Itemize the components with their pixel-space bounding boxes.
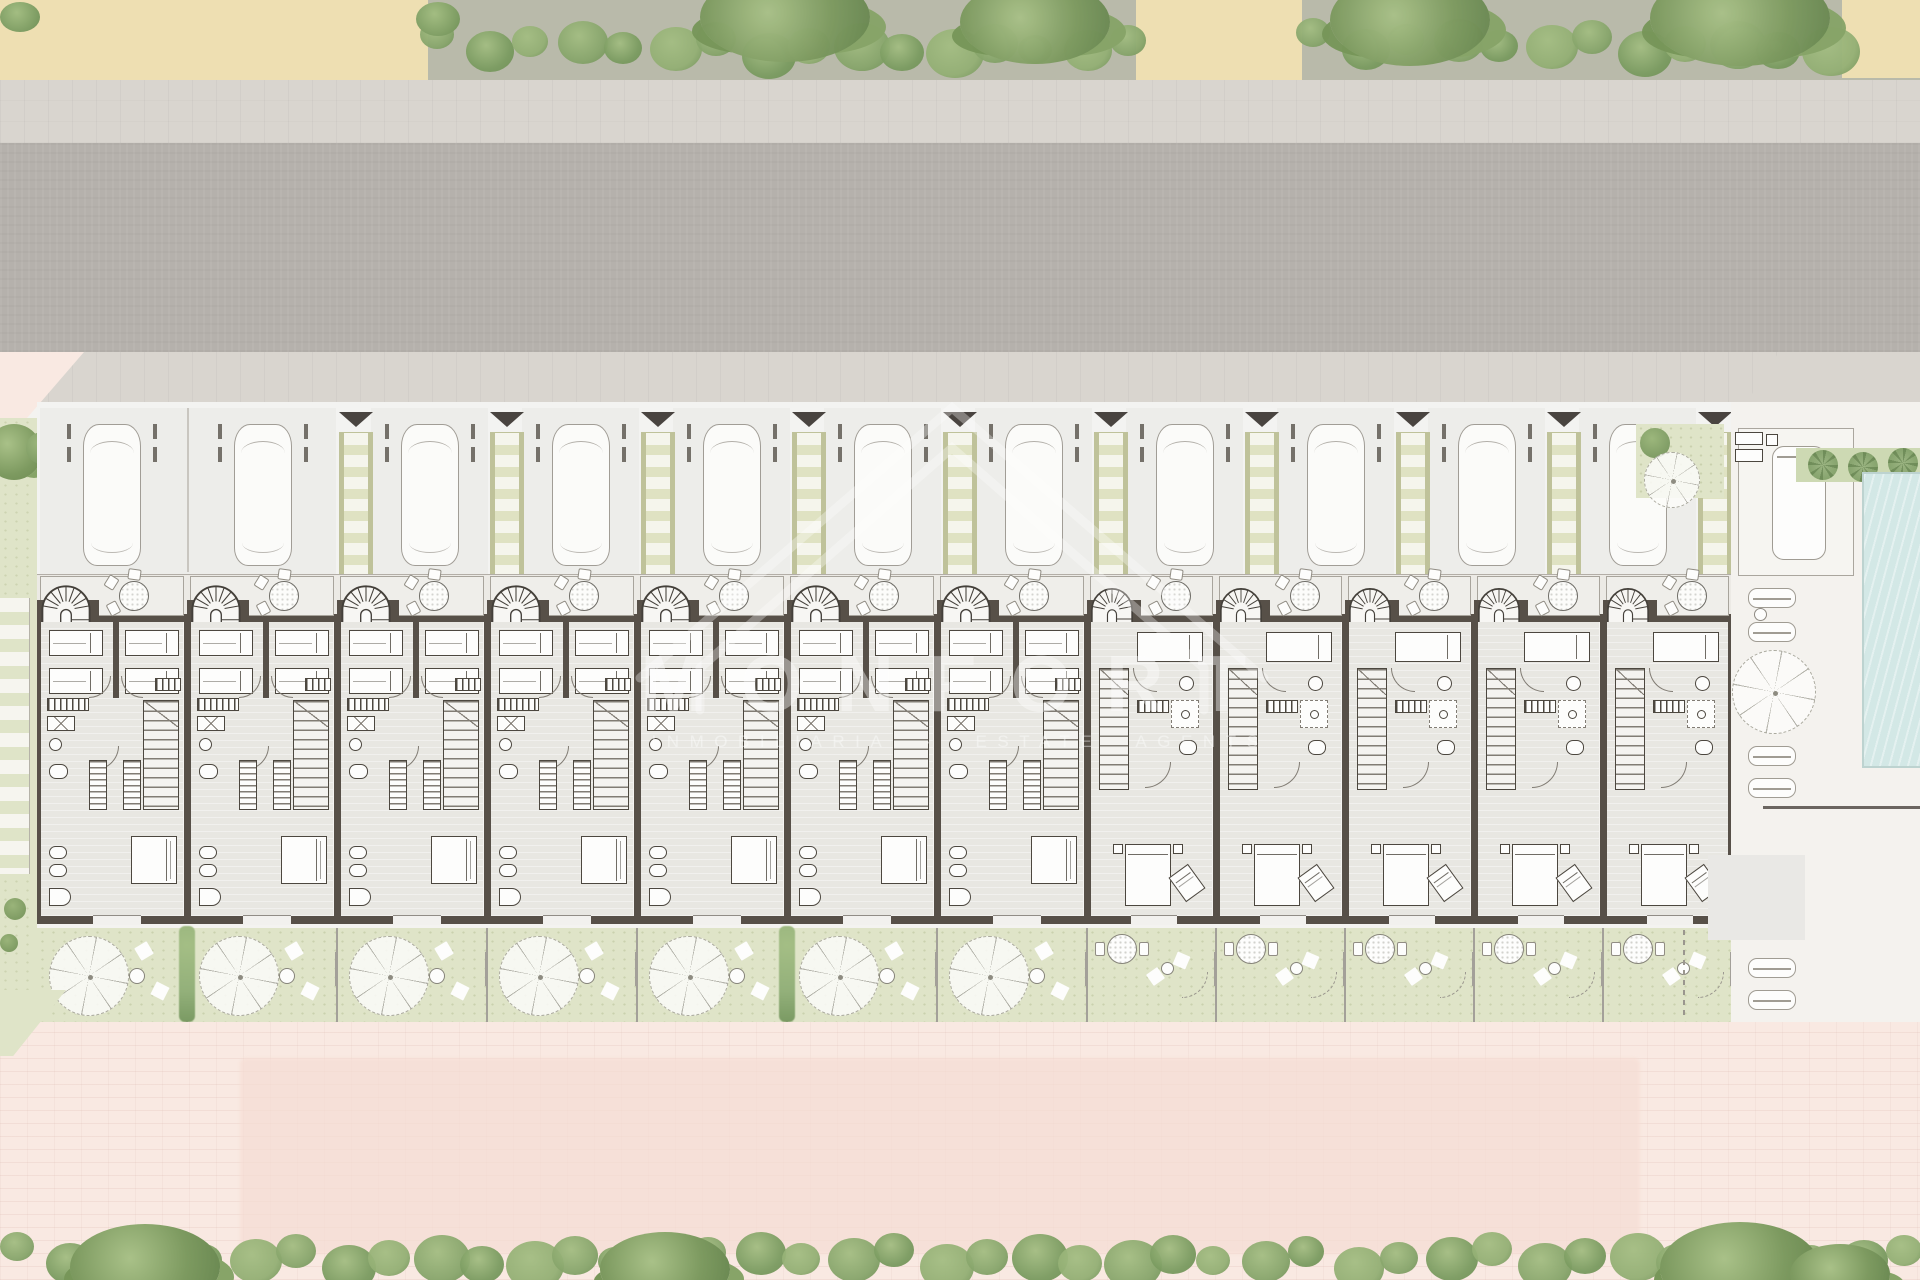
garden-side-table (1290, 962, 1303, 975)
terrace-table (419, 581, 449, 611)
bay-marking (773, 447, 777, 462)
door-arc (1274, 762, 1300, 788)
door-arc (1133, 668, 1157, 692)
bed-line (879, 643, 912, 644)
parasol-center (88, 975, 93, 980)
bay-marking (1140, 424, 1144, 439)
stair-diagonal (1044, 701, 1078, 727)
door-arc (1262, 668, 1286, 692)
stair-diagonal (1358, 669, 1386, 695)
bed-line (729, 643, 762, 644)
hedge (1296, 18, 1330, 47)
sand-path (0, 0, 428, 80)
parasol-icon (949, 936, 1029, 1016)
toilet (499, 764, 518, 779)
pillow-line (320, 841, 321, 879)
pillow-line (466, 839, 467, 881)
bed-line (1029, 643, 1062, 644)
single-bed (275, 630, 329, 656)
terrace-chair (1661, 574, 1677, 591)
bed-line (803, 643, 836, 644)
parasol-center (388, 975, 393, 980)
door-arc (389, 676, 411, 698)
bathroom-sink (1695, 676, 1710, 691)
single-bed (1137, 632, 1203, 662)
stair-diagonal (1487, 669, 1515, 695)
wardrobe-shelves (273, 760, 291, 810)
hedge (512, 26, 548, 57)
pillow-line (620, 841, 621, 879)
toilet (349, 846, 367, 859)
bed-line (129, 643, 162, 644)
bed-line (53, 681, 86, 682)
parasol-icon (49, 936, 129, 1016)
bathroom-sink (1308, 676, 1323, 691)
pillow-line (766, 839, 767, 881)
terrace-chair (1406, 600, 1422, 617)
terrace-table (1677, 581, 1707, 611)
closet-box (47, 716, 75, 731)
door-arc (1661, 762, 1687, 788)
parasol-center (688, 975, 693, 980)
single-bed (1653, 632, 1719, 662)
door-arc (689, 676, 711, 698)
bedroom-divider-wall (263, 622, 269, 698)
shower-tray (49, 888, 71, 906)
terrace-chair (1298, 568, 1312, 581)
hedge (552, 1236, 598, 1275)
bush (0, 934, 18, 952)
wardrobe-rail (1395, 700, 1427, 713)
closet-box (797, 716, 825, 731)
storage-unit (1735, 449, 1763, 462)
double-bed (431, 836, 477, 884)
garden-door-gap (393, 915, 441, 925)
butterfly-chair (896, 977, 924, 1005)
stair-diagonal (744, 701, 778, 727)
bathroom-sink (1566, 676, 1581, 691)
terrace-chair (1027, 568, 1041, 581)
single-bed (49, 630, 103, 656)
internal-stair (893, 700, 929, 810)
closet-box (497, 716, 525, 731)
wardrobe-shelves (573, 760, 591, 810)
door-arc (871, 676, 893, 698)
gate-arc (1440, 972, 1466, 998)
bay-marking (622, 424, 626, 439)
car-windshield (408, 441, 452, 453)
bathroom-sink (349, 738, 362, 751)
single-bed (1266, 632, 1332, 662)
terrace-chair (553, 574, 569, 591)
garden-chair (1095, 942, 1105, 956)
terrace-chair (1664, 600, 1680, 617)
car-windshield (90, 441, 134, 453)
pillow-line (540, 633, 541, 653)
nightstand (1302, 844, 1312, 854)
bay-marking (1075, 447, 1079, 462)
toilet (49, 846, 67, 859)
hedge (1334, 1247, 1384, 1280)
road (0, 143, 1920, 352)
internal-stair (1099, 668, 1129, 790)
hedge (416, 2, 460, 36)
double-bed (131, 836, 177, 884)
bay-marking (304, 424, 308, 439)
entry-marker-icon (490, 412, 524, 427)
bay-marking (153, 447, 157, 462)
entry-marker-icon (943, 412, 977, 427)
double-bed (1125, 844, 1171, 906)
private-garden (637, 928, 787, 1022)
private-garden (787, 928, 937, 1022)
garden-fence (1215, 928, 1217, 1022)
door-arc (989, 676, 1011, 698)
nightstand (1113, 844, 1123, 854)
stair-diagonal (1100, 669, 1128, 695)
garden-fence (336, 928, 338, 1022)
wardrobe-shelves (723, 760, 741, 810)
terrace-table (569, 581, 599, 611)
garden-chair (1611, 942, 1621, 956)
garden-door-gap (993, 915, 1041, 925)
pillow-line (1189, 635, 1190, 659)
lounger-bar (1753, 1000, 1791, 1002)
pillow-line (166, 633, 167, 653)
storage-unit (1735, 432, 1763, 445)
single-bed (125, 630, 179, 656)
bay-marking (622, 447, 626, 462)
terrace-chair (1148, 600, 1164, 617)
sidewalk (0, 80, 1920, 143)
bay-marking (1140, 447, 1144, 462)
garden-chair (1353, 942, 1363, 956)
butterfly-chair (596, 977, 624, 1005)
parasol-center (1773, 691, 1778, 696)
private-garden (1345, 928, 1474, 1022)
hedge (466, 31, 514, 72)
bedroom-divider-wall (113, 622, 119, 698)
shower-drain (1310, 710, 1319, 719)
terrace-chair (577, 568, 591, 581)
tree (26, 432, 58, 464)
garden-chair (1224, 942, 1234, 956)
door-arc (1520, 668, 1544, 692)
closet-box (347, 716, 375, 731)
sun-lounger (1748, 958, 1796, 978)
hedge (368, 1240, 410, 1276)
shower-drain (1439, 710, 1448, 719)
butterfly-chair (146, 977, 174, 1005)
bay-marking (773, 424, 777, 439)
hedge (1526, 25, 1578, 69)
parked-car (1156, 424, 1214, 566)
hedge (558, 21, 608, 64)
shower-tray (199, 888, 221, 906)
garden-side-table (1029, 968, 1045, 984)
hedge (1564, 1238, 1606, 1274)
door-arc (1145, 762, 1171, 788)
door-arc (89, 676, 111, 698)
butterfly-chair (131, 938, 158, 965)
hedge (230, 1239, 282, 1280)
nightstand (1431, 844, 1441, 854)
garden-table (1236, 934, 1266, 964)
terrace-chair (1277, 600, 1293, 617)
gate-arc (1311, 972, 1337, 998)
bay-marking (218, 447, 222, 462)
bathroom-sink (649, 738, 662, 751)
private-garden (1087, 928, 1216, 1022)
door-arc (839, 676, 861, 698)
car-windshield (1012, 441, 1056, 453)
pillow-line (166, 839, 167, 881)
pillow-line (1386, 854, 1426, 855)
tree (70, 1224, 220, 1280)
terrace-chair (1535, 600, 1551, 617)
butterfly-chair (1046, 977, 1074, 1005)
garden-door-gap (543, 915, 591, 925)
lounger-bar (1753, 788, 1791, 790)
terrace-chair (127, 568, 141, 581)
bathroom-sink (1437, 676, 1452, 691)
shower-tray (799, 888, 821, 906)
bay-marking (838, 424, 842, 439)
terrace-chair (706, 600, 722, 617)
side-steps (0, 598, 30, 874)
garden-fence (1086, 928, 1088, 1022)
entry-stair (1089, 556, 1135, 668)
garden-table (1623, 934, 1653, 964)
butterfly-chair (581, 938, 608, 965)
private-garden (337, 928, 487, 1022)
shower-tray (649, 888, 671, 906)
bay-marking (1593, 447, 1597, 462)
wardrobe-shelves (539, 760, 557, 810)
double-bed (1641, 844, 1687, 906)
pool-ball (1754, 608, 1767, 621)
pillow-line (240, 633, 241, 653)
bathroom-sink (499, 738, 512, 751)
butterfly-chair (746, 977, 774, 1005)
garden-fence (786, 928, 788, 1022)
private-garden (1603, 928, 1732, 1022)
terrace-table (1290, 581, 1320, 611)
entry-marker-icon (1094, 412, 1128, 427)
wardrobe-shelves (989, 760, 1007, 810)
garden-fence (936, 928, 938, 1022)
wardrobe-rail (797, 698, 839, 711)
wardrobe-shelves (423, 760, 441, 810)
bathroom-sink (49, 738, 62, 751)
terrace-chair (1003, 574, 1019, 591)
terrace-chair (727, 568, 741, 581)
stair-diagonal (594, 701, 628, 727)
sand-path (1136, 0, 1302, 80)
bed-line (203, 681, 236, 682)
terrace-chair (256, 600, 272, 617)
terrace-table (1419, 581, 1449, 611)
bed-line (53, 643, 86, 644)
car-windshield (1314, 441, 1358, 453)
entry-stair (1218, 556, 1264, 668)
single-bed (949, 630, 1003, 656)
pillow-line (90, 633, 91, 653)
bay-marking (1528, 424, 1532, 439)
bidet (799, 864, 817, 877)
single-bed (575, 630, 629, 656)
garden-door-gap (1260, 915, 1306, 925)
terrace-chair (1274, 574, 1290, 591)
bedroom-divider-wall (863, 622, 869, 698)
hedge (1472, 1232, 1512, 1266)
terrace-chair (856, 600, 872, 617)
double-bed (731, 836, 777, 884)
nightstand (1173, 844, 1183, 854)
garden-chair (1139, 942, 1149, 956)
bathroom-sink (1179, 676, 1194, 691)
lounger-bar (1753, 968, 1791, 970)
palm-tree (1848, 452, 1878, 482)
toilet (649, 764, 668, 779)
toilet (499, 846, 517, 859)
toilet (799, 846, 817, 859)
terrace-chair (253, 574, 269, 591)
wardrobe-rail (947, 698, 989, 711)
bed-line (653, 643, 686, 644)
stair-diagonal (294, 701, 328, 727)
garden-fence (1473, 928, 1475, 1022)
bay-marking (838, 447, 842, 462)
wardrobe-rail (497, 698, 539, 711)
car-windshield (861, 441, 905, 453)
entry-marker-icon (1698, 412, 1732, 427)
nightstand (1629, 844, 1639, 854)
butterfly-chair (446, 977, 474, 1005)
wardrobe-shelves (839, 760, 857, 810)
toilet (949, 846, 967, 859)
sun-lounger (1748, 746, 1796, 766)
toilet (199, 846, 217, 859)
garden-chair (1526, 942, 1536, 956)
toilet (49, 764, 68, 779)
double-bed (1512, 844, 1558, 906)
parked-car (1307, 424, 1365, 566)
parasol-center (838, 975, 843, 980)
bed-line (279, 643, 312, 644)
hedge (880, 34, 924, 71)
bay-marking (536, 424, 540, 439)
wardrobe-rail (455, 678, 481, 691)
swimming-pool (1862, 472, 1920, 768)
wardrobe-shelves (239, 760, 257, 810)
pillow-line (1515, 854, 1555, 855)
lounge-chair (1426, 864, 1463, 902)
fence-post (1730, 952, 1732, 986)
garden-side-table (1161, 962, 1174, 975)
shower-drain (1697, 710, 1706, 719)
terrace-chair (1556, 568, 1570, 581)
terrace-chair (1403, 574, 1419, 591)
bed-line (579, 643, 612, 644)
terrace-table (269, 581, 299, 611)
pool-parasol-icon (1732, 650, 1816, 734)
car-windshield (559, 441, 603, 453)
door-arc (1532, 762, 1558, 788)
bed-line (353, 681, 386, 682)
sun-lounger (1748, 588, 1796, 608)
pillow-line (466, 633, 467, 653)
hedge (874, 1233, 914, 1267)
bay-marking (304, 447, 308, 462)
toilet (1179, 740, 1197, 755)
terrace-chair (103, 574, 119, 591)
terrace-chair (1427, 568, 1441, 581)
pillow-line (990, 633, 991, 653)
bay-marking (218, 424, 222, 439)
parasol-icon (499, 936, 579, 1016)
terrace-chair (877, 568, 891, 581)
butterfly-chair (881, 938, 908, 965)
bay-marking (1593, 424, 1597, 439)
door-arc (721, 676, 743, 698)
parasol-icon (1644, 452, 1700, 508)
bathroom-sink (949, 738, 962, 751)
car-windshield (241, 441, 285, 453)
pillow-line (616, 633, 617, 653)
internal-stair (443, 700, 479, 810)
garden-door-gap (843, 915, 891, 925)
door-arc (121, 676, 143, 698)
parasol-icon (649, 936, 729, 1016)
garden-side-table (579, 968, 595, 984)
entry-stair (1476, 556, 1522, 668)
terrace-chair (106, 600, 122, 617)
internal-stair (1043, 700, 1079, 810)
parked-car (1458, 424, 1516, 566)
private-garden (487, 928, 637, 1022)
garden-door-gap (693, 915, 741, 925)
terrace-table (119, 581, 149, 611)
bay-marking (1442, 447, 1446, 462)
bay-marking (1226, 424, 1230, 439)
garden-side-table (1548, 962, 1561, 975)
parked-car (552, 424, 610, 566)
single-bed (349, 630, 403, 656)
pillow-line (920, 841, 921, 879)
entry-marker-icon (1547, 412, 1581, 427)
hedge (1110, 25, 1146, 56)
sidewalk (0, 352, 1920, 402)
toilet (799, 764, 818, 779)
car-windshield (1163, 441, 1207, 453)
bay-marking (1528, 447, 1532, 462)
garden-side-table (1419, 962, 1432, 975)
pillow-line (316, 839, 317, 881)
wardrobe-rail (1137, 700, 1169, 713)
hedge (1150, 1235, 1196, 1274)
internal-stair (1615, 668, 1645, 790)
gate-arc (1182, 972, 1208, 998)
wardrobe-shelves (1023, 760, 1041, 810)
pillow-line (316, 633, 317, 653)
stair-diagonal (444, 701, 478, 727)
parked-car (401, 424, 459, 566)
shower-tray (349, 888, 371, 906)
toilet (199, 764, 218, 779)
wardrobe-shelves (873, 760, 891, 810)
terrace-chair (853, 574, 869, 591)
